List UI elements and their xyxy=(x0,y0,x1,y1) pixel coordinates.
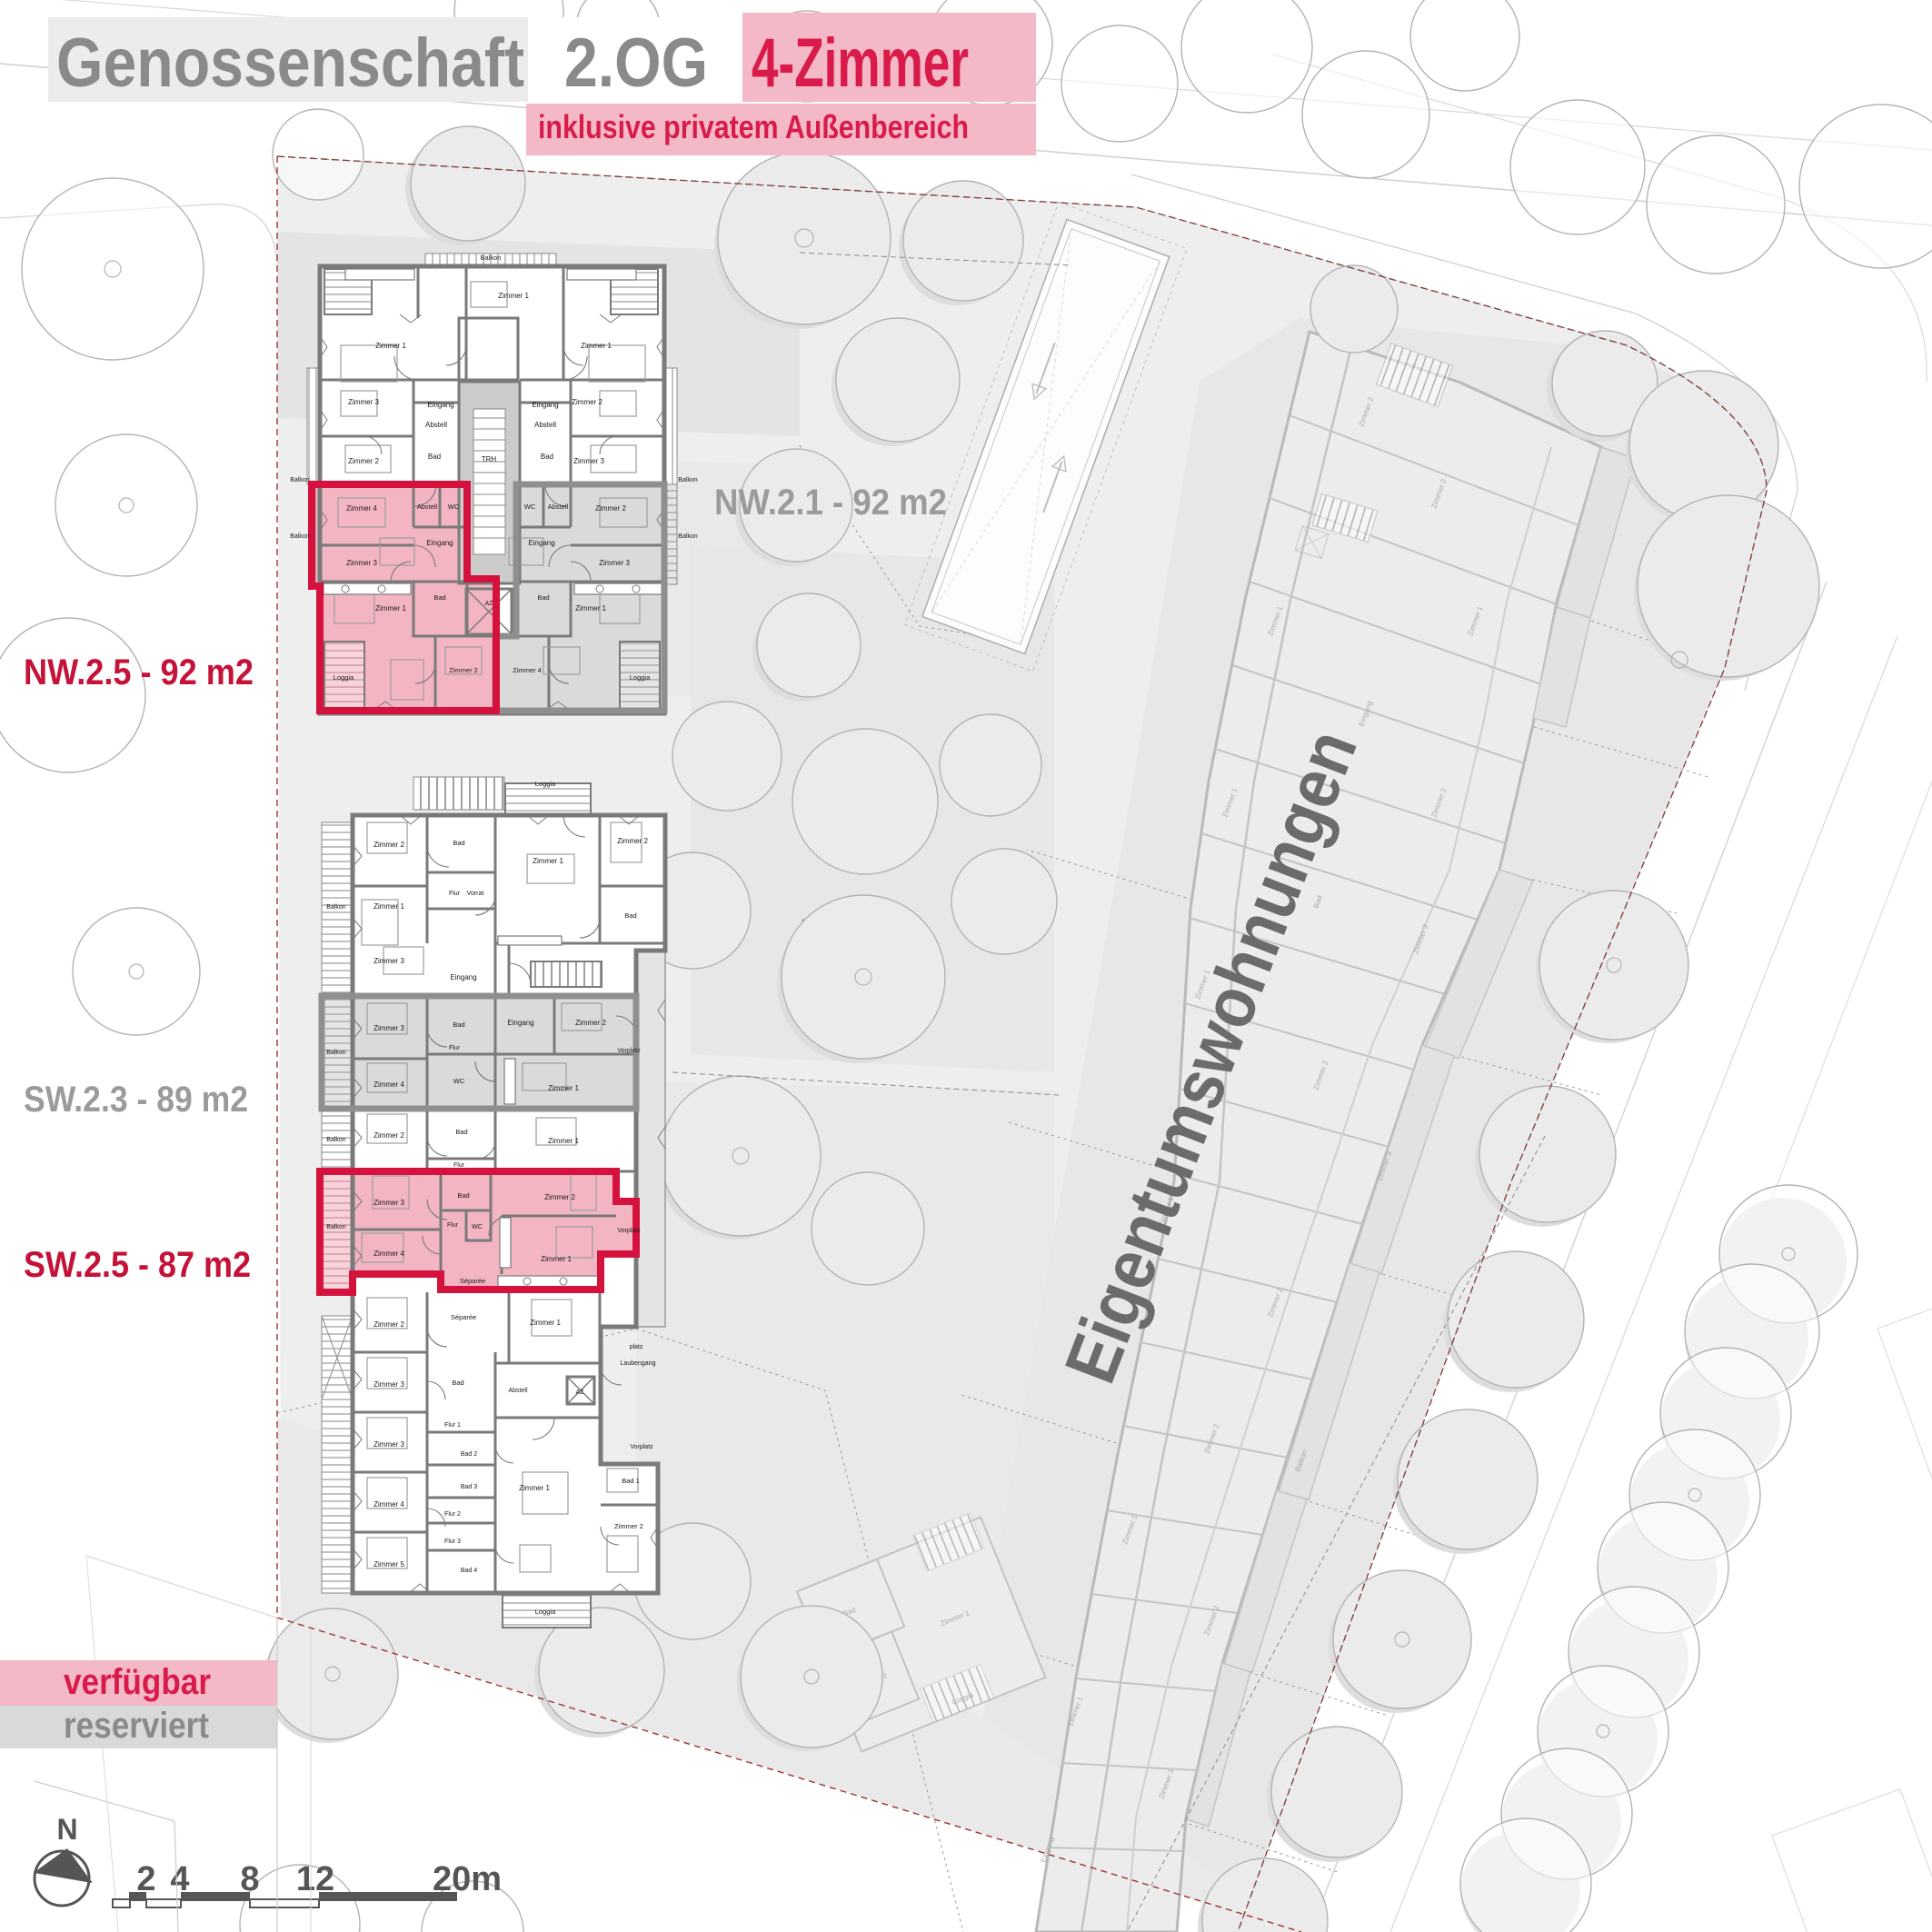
svg-text:Balkon: Balkon xyxy=(326,1137,346,1143)
svg-text:Zimmer 2: Zimmer 2 xyxy=(449,666,478,674)
svg-text:Flur: Flur xyxy=(449,891,461,897)
svg-text:Balkon: Balkon xyxy=(326,1050,346,1056)
svg-text:Zimmer 2: Zimmer 2 xyxy=(348,457,379,465)
svg-text:Zimmer 1: Zimmer 1 xyxy=(575,604,606,612)
svg-text:Zimmer 3: Zimmer 3 xyxy=(373,1199,404,1207)
svg-text:Laubengang: Laubengang xyxy=(621,1360,656,1367)
svg-text:Balkon: Balkon xyxy=(290,533,310,540)
svg-text:Abstell: Abstell xyxy=(425,421,447,429)
svg-text:Séparée: Séparée xyxy=(460,1277,485,1285)
svg-text:Flur: Flur xyxy=(447,1222,459,1229)
svg-text:Zimmer 4: Zimmer 4 xyxy=(373,1500,404,1509)
svg-text:Bad: Bad xyxy=(541,453,553,461)
svg-text:Zimmer 1: Zimmer 1 xyxy=(375,342,406,350)
svg-text:Bad: Bad xyxy=(452,1379,463,1387)
svg-text:Zimmer 3: Zimmer 3 xyxy=(373,1024,404,1032)
svg-text:Vorrat: Vorrat xyxy=(467,891,484,897)
svg-text:N: N xyxy=(56,1813,77,1846)
svg-text:Zimmer 4: Zimmer 4 xyxy=(513,666,542,674)
svg-text:Balkon: Balkon xyxy=(290,477,310,483)
svg-text:Séparée: Séparée xyxy=(451,1313,476,1321)
svg-text:Balkon: Balkon xyxy=(678,533,698,540)
svg-text:Zimmer 3: Zimmer 3 xyxy=(348,398,379,406)
svg-text:Zimmer 1: Zimmer 1 xyxy=(375,604,406,612)
svg-text:Abstell: Abstell xyxy=(534,421,556,429)
svg-text:reserviert: reserviert xyxy=(64,1706,209,1746)
svg-text:Abstell: Abstell xyxy=(548,503,569,511)
svg-text:Zimmer 1: Zimmer 1 xyxy=(548,1137,579,1145)
svg-text:platz: platz xyxy=(630,1344,643,1350)
svg-text:Zimmer 3: Zimmer 3 xyxy=(599,559,630,567)
svg-text:SW.2.3 - 89 m2: SW.2.3 - 89 m2 xyxy=(24,1080,248,1120)
svg-text:WC: WC xyxy=(524,503,536,511)
svg-text:Eingang: Eingang xyxy=(507,1019,533,1027)
svg-text:AZ: AZ xyxy=(576,1389,585,1396)
svg-text:Loggia: Loggia xyxy=(535,1608,556,1616)
svg-text:Flur: Flur xyxy=(453,1162,465,1169)
svg-text:Vorplatz: Vorplatz xyxy=(617,1228,641,1234)
svg-text:AZ: AZ xyxy=(485,601,494,607)
svg-text:Bad 4: Bad 4 xyxy=(461,1568,477,1574)
svg-text:Flur 3: Flur 3 xyxy=(444,1539,461,1545)
svg-text:Bad 2: Bad 2 xyxy=(461,1451,477,1458)
svg-text:WC: WC xyxy=(472,1224,483,1230)
svg-text:Flur: Flur xyxy=(449,1045,461,1051)
svg-text:Balkon: Balkon xyxy=(678,477,698,483)
svg-text:Bad: Bad xyxy=(457,1191,469,1200)
svg-text:2.OG: 2.OG xyxy=(564,25,708,102)
svg-text:Abstell: Abstell xyxy=(417,503,438,511)
svg-text:Bad: Bad xyxy=(537,593,549,602)
svg-text:Zimmer 5: Zimmer 5 xyxy=(373,1560,404,1569)
svg-text:verfügbar: verfügbar xyxy=(64,1662,211,1702)
svg-text:Loggia: Loggia xyxy=(630,673,651,682)
svg-text:Bad: Bad xyxy=(453,1021,464,1029)
svg-text:Zimmer 4: Zimmer 4 xyxy=(346,504,377,513)
svg-text:WC: WC xyxy=(453,1077,465,1085)
svg-text:NW.2.5 - 92 m2: NW.2.5 - 92 m2 xyxy=(24,652,254,692)
svg-text:Bad: Bad xyxy=(624,911,636,920)
svg-text:Zimmer 3: Zimmer 3 xyxy=(373,957,404,965)
svg-text:Eingang: Eingang xyxy=(426,539,453,547)
svg-text:Zimmer 4: Zimmer 4 xyxy=(373,1081,404,1089)
svg-text:Loggia: Loggia xyxy=(334,673,354,682)
svg-text:Zimmer 1: Zimmer 1 xyxy=(581,342,612,350)
svg-text:Zimmer 1: Zimmer 1 xyxy=(530,1319,561,1327)
svg-text:Zimmer 1: Zimmer 1 xyxy=(533,857,563,865)
svg-text:Zimmer 1: Zimmer 1 xyxy=(373,902,404,911)
svg-text:Balkon: Balkon xyxy=(481,254,502,262)
svg-text:Zimmer 2: Zimmer 2 xyxy=(617,837,648,845)
svg-text:Zimmer 2: Zimmer 2 xyxy=(373,1320,404,1329)
svg-text:Loggia: Loggia xyxy=(535,780,556,788)
svg-text:WC: WC xyxy=(448,503,460,511)
svg-text:Vorplatz: Vorplatz xyxy=(630,1444,653,1450)
svg-text:Zimmer 2: Zimmer 2 xyxy=(575,1019,606,1027)
svg-text:Zimmer 1: Zimmer 1 xyxy=(548,1084,579,1092)
svg-text:Bad 3: Bad 3 xyxy=(461,1484,477,1490)
svg-text:Bad: Bad xyxy=(433,593,445,602)
svg-text:Bad: Bad xyxy=(428,453,441,461)
svg-text:Balkon: Balkon xyxy=(326,1224,346,1230)
svg-text:Eingang: Eingang xyxy=(427,401,453,409)
svg-text:Zimmer 1: Zimmer 1 xyxy=(498,292,529,300)
svg-text:Zimmer 3: Zimmer 3 xyxy=(373,1380,404,1389)
svg-text:Vorplatz: Vorplatz xyxy=(617,1048,641,1054)
svg-text:Zimmer 2: Zimmer 2 xyxy=(544,1193,575,1201)
svg-text:Balkon: Balkon xyxy=(326,904,346,911)
svg-text:Zimmer 2: Zimmer 2 xyxy=(572,398,603,406)
svg-text:Abstell: Abstell xyxy=(508,1388,527,1394)
svg-text:Eingang: Eingang xyxy=(532,401,558,409)
svg-text:SW.2.5 - 87 m2: SW.2.5 - 87 m2 xyxy=(24,1245,251,1285)
svg-text:Zimmer 2: Zimmer 2 xyxy=(373,1131,404,1140)
svg-text:Zimmer 2: Zimmer 2 xyxy=(595,504,626,513)
svg-text:Bad: Bad xyxy=(453,839,464,847)
svg-text:Eingang: Eingang xyxy=(450,973,476,981)
svg-text:Zimmer 3: Zimmer 3 xyxy=(573,457,604,465)
svg-text:Bad 1: Bad 1 xyxy=(622,1477,640,1485)
svg-text:Genossenschaft: Genossenschaft xyxy=(56,25,524,102)
svg-text:Eingang: Eingang xyxy=(528,539,554,547)
svg-text:Zimmer 3: Zimmer 3 xyxy=(346,559,377,567)
svg-text:Zimmer 2: Zimmer 2 xyxy=(373,841,404,849)
svg-text:Zimmer 1: Zimmer 1 xyxy=(541,1255,572,1263)
svg-text:Zimmer 2: Zimmer 2 xyxy=(614,1522,643,1530)
svg-text:Bad: Bad xyxy=(455,1128,467,1136)
svg-text:4-Zimmer: 4-Zimmer xyxy=(752,25,969,102)
svg-text:Flur 2: Flur 2 xyxy=(444,1511,461,1518)
svg-text:Zimmer 1: Zimmer 1 xyxy=(519,1484,550,1492)
svg-text:inklusive privatem Außenbereic: inklusive privatem Außenbereich xyxy=(538,108,969,145)
svg-text:NW.2.1 - 92 m2: NW.2.1 - 92 m2 xyxy=(714,483,947,523)
svg-text:TRH: TRH xyxy=(482,455,497,463)
svg-text:Zimmer 4: Zimmer 4 xyxy=(373,1250,404,1258)
svg-text:Flur 1: Flur 1 xyxy=(444,1422,461,1429)
svg-text:Zimmer 3: Zimmer 3 xyxy=(373,1440,404,1449)
